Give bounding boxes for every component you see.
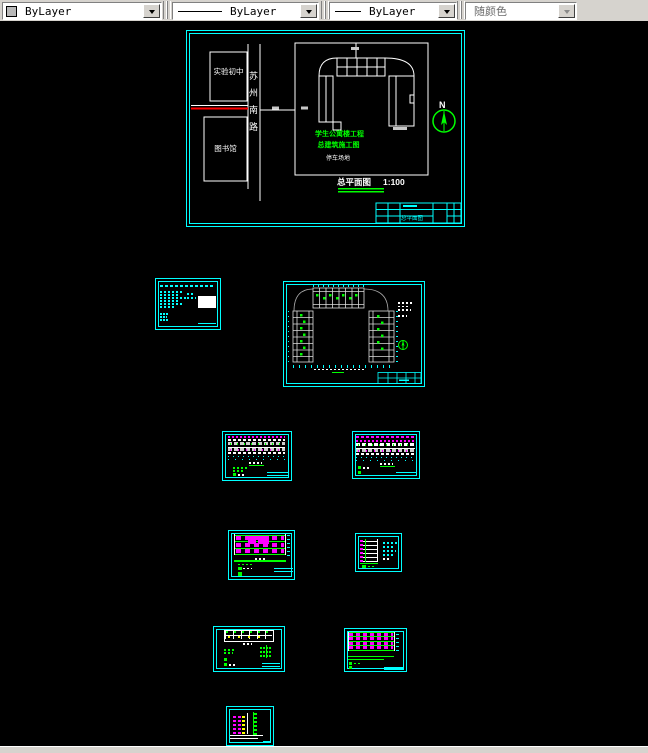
drawing-site-plan[interactable]: 实验初中 图书馆 苏州南路 学生公寓楼工程 总建筑施工图 停车场地 N 总平面图… <box>186 30 465 227</box>
notes-textline <box>187 293 195 295</box>
elevation-b-window-row <box>349 633 393 636</box>
library-building-label: 图书馆 <box>204 145 247 153</box>
chevron-down-icon <box>564 10 570 17</box>
plan-legend-textline <box>398 315 407 317</box>
parking-area-label: 停车场地 <box>323 156 353 162</box>
plan-b-titleblock-line <box>396 475 417 476</box>
site-plan-caption: 总平面图 1:100 <box>337 178 405 187</box>
plan-title-block <box>378 373 421 384</box>
plan-north-arrow-icon <box>399 340 408 350</box>
site-plan-caption-scale: 1:100 <box>383 178 405 187</box>
notes-heading-textline <box>160 285 213 287</box>
elevation-a-window-block <box>248 536 256 544</box>
object-properties-toolbar: ByLayer ByLayer ByLayer 随颜色 <box>0 0 648 22</box>
roof-plan-note-textline <box>224 649 236 651</box>
notes-textline <box>160 300 180 302</box>
plan-caption-underline <box>332 372 344 374</box>
plan-a-note-textline <box>233 470 243 472</box>
elevation-b-titleblock-line <box>384 669 404 670</box>
section-level-textline <box>383 554 393 556</box>
plan-dim-row-bottom <box>293 365 394 368</box>
plan-dim-col-left <box>288 311 290 362</box>
lineweight-combo-dropdown-arrow[interactable] <box>438 4 455 18</box>
plan-a-caption-textline <box>249 462 262 464</box>
drawing-elevation-b[interactable] <box>344 628 407 672</box>
section-legend-textline <box>368 566 376 568</box>
plan-legend-textline <box>398 309 411 311</box>
chevron-down-icon <box>444 10 450 17</box>
color-combo-value: ByLayer <box>25 5 71 18</box>
stair-base-line <box>230 735 263 736</box>
elevation-a-window-row <box>236 549 284 553</box>
drawing-floor-plan[interactable] <box>283 281 425 387</box>
stair-base-line <box>230 738 258 739</box>
notes-textline <box>160 303 184 305</box>
notes-textline <box>160 294 178 296</box>
road-name-label: 苏州南路 <box>248 71 257 149</box>
notes-textline <box>187 297 196 299</box>
plan-legend-textline <box>398 306 409 308</box>
linetype-combo-dropdown-arrow[interactable] <box>300 4 317 18</box>
section-note-textline <box>383 558 391 560</box>
elevation-a-titleblock-line <box>274 571 293 572</box>
section-level-textline <box>383 542 397 544</box>
elevation-a-note-textline <box>238 564 253 566</box>
notes-textline <box>160 306 176 308</box>
plan-legend-textline <box>398 302 412 304</box>
plan-a-wall-row <box>228 439 285 441</box>
stair-magenta-column <box>233 714 236 734</box>
roof-plan-note-textline <box>224 652 233 654</box>
notes-textline <box>160 313 168 315</box>
color-combo[interactable]: ByLayer <box>2 2 162 20</box>
lineweight-preview-icon <box>335 11 361 12</box>
site-plan-linework <box>187 31 464 226</box>
linetype-combo[interactable]: ByLayer <box>172 2 319 20</box>
chevron-down-icon <box>306 10 312 17</box>
notes-textline <box>160 319 168 321</box>
roof-plan-titleblock-line <box>262 666 280 667</box>
plan-a-dim-row-bottom <box>228 459 285 461</box>
plan-b-dim-row-bottom <box>356 457 415 459</box>
elevation-b-edge-line <box>394 632 395 651</box>
site-plan-caption-title: 总平面图 <box>337 178 371 187</box>
plan-b-dim-row <box>356 440 415 442</box>
linetype-combo-value: ByLayer <box>230 5 276 18</box>
plotstyle-combo: 随颜色 <box>465 2 577 20</box>
elevation-a-ground-line <box>234 560 286 562</box>
site-plan-titleblock-label: 总平面图 <box>401 217 423 223</box>
roof-plan-green-marks <box>226 631 270 633</box>
roof-plan-legend-swatch <box>224 663 227 666</box>
notes-titleblock-line <box>198 326 216 327</box>
stair-magenta-column <box>238 714 241 734</box>
stair-edge-line <box>247 713 248 734</box>
elevation-a-edge-line <box>285 534 286 555</box>
plan-dim-row-top <box>313 285 364 287</box>
drawing-section[interactable] <box>355 533 402 572</box>
elevation-a-level-marks <box>287 534 290 556</box>
project-title-line2: 总建筑施工图 <box>315 142 362 149</box>
section-edge-line <box>377 539 378 562</box>
plan-b-caption-textline <box>380 463 393 465</box>
elevation-a-caption-textline <box>255 558 266 560</box>
linetype-preview-icon <box>178 11 222 12</box>
roof-detail-hline <box>260 647 272 649</box>
plan-a-wall-row <box>228 452 285 454</box>
roof-plan-legend-swatch <box>224 658 227 661</box>
toolbar-separator <box>167 1 171 19</box>
elevation-b-window-row <box>349 646 393 649</box>
plan-caption-textline <box>314 369 364 371</box>
plan-dim-col-right <box>396 311 398 362</box>
plan-b-door-marks <box>358 444 413 446</box>
elevation-a-window-block <box>258 536 269 544</box>
elevation-a-legend-swatch <box>238 572 242 576</box>
north-label: N <box>439 101 446 110</box>
plan-b-dim-marks <box>358 450 413 452</box>
elevation-a-edge-line <box>234 534 235 555</box>
drawing-roof-plan[interactable] <box>213 626 285 672</box>
plan-b-wall-row <box>356 453 415 455</box>
section-green-line <box>365 539 366 562</box>
elevation-b-legend-swatch <box>349 666 352 669</box>
roof-plan-legend-textline <box>229 664 236 666</box>
roof-plan-titleblock-line <box>262 663 280 664</box>
school-building-label: 实验初中 <box>210 68 247 76</box>
elevation-b-titleblock-line <box>384 667 404 668</box>
plan-a-dim-row <box>228 436 285 438</box>
roof-detail-hline <box>260 651 272 653</box>
section-legend-swatch <box>362 565 366 568</box>
elevation-a-legend-textline <box>243 568 252 570</box>
stair-titleblock-mark <box>263 741 271 743</box>
elevation-b-legend-swatch <box>349 662 352 665</box>
plan-a-note-textline <box>233 467 247 469</box>
floor-plan-linework <box>284 282 424 386</box>
notes-textline <box>160 316 167 318</box>
drawing-elevation-a[interactable] <box>228 530 295 580</box>
plan-a-dim-row-bottom <box>228 456 285 458</box>
elevation-b-floor-line <box>348 650 394 651</box>
elevation-b-level-marks <box>396 632 399 651</box>
color-swatch <box>6 6 17 17</box>
section-ground-line <box>360 563 378 565</box>
plan-b-legend-textline <box>363 467 371 469</box>
elevation-b-ground-line2 <box>348 659 384 660</box>
lineweight-combo-value: ByLayer <box>369 5 415 18</box>
project-title-line1: 学生公寓楼工程 <box>315 131 362 138</box>
notes-textline <box>160 297 186 299</box>
drawing-standard-plan-a[interactable] <box>222 431 292 481</box>
stair-yellow-column <box>242 714 245 734</box>
elevation-a-floor-line <box>234 554 285 555</box>
plan-a-titleblock-line <box>267 472 289 473</box>
north-arrow-icon <box>433 110 455 132</box>
section-level-textline <box>383 550 396 552</box>
elevation-b-legend-textline <box>354 663 362 665</box>
plotstyle-combo-value: 随颜色 <box>474 3 507 19</box>
stair-green-strip <box>254 712 257 735</box>
elevation-a-titleblock-line <box>274 568 293 569</box>
plan-a-caption-underline <box>249 465 264 466</box>
cad-window: { "toolbar": { "color_combo": { "value":… <box>0 0 648 752</box>
drawing-standard-plan-b[interactable] <box>352 431 420 479</box>
plan-a-dim-marks <box>230 449 283 451</box>
drawing-stair-detail[interactable] <box>226 706 274 746</box>
plan-b-dim-row <box>356 436 415 438</box>
elevation-b-edge-line <box>348 632 349 651</box>
elevation-a-legend-swatch <box>238 567 242 571</box>
roof-plan-yellow-marks <box>228 636 268 638</box>
plan-b-titleblock-line <box>396 472 417 473</box>
drawing-design-notes[interactable] <box>155 278 221 330</box>
roof-detail-hline <box>260 655 272 657</box>
notes-white-panel <box>198 296 216 308</box>
section-left-details <box>360 539 363 562</box>
plotstyle-combo-dropdown-arrow <box>558 4 575 18</box>
plan-b-legend-swatch <box>358 471 361 474</box>
plan-a-legend-textline <box>238 474 246 476</box>
roof-plan-caption-textline <box>243 643 252 645</box>
plan-a-door-marks <box>230 443 283 445</box>
elevation-b-window-row <box>349 642 393 645</box>
elevation-b-window-row <box>349 637 393 640</box>
color-combo-dropdown-arrow[interactable] <box>143 4 160 18</box>
plan-a-titleblock-line <box>267 475 289 476</box>
chevron-down-icon <box>149 10 155 17</box>
elevation-b-ground-line <box>348 656 394 658</box>
notes-textline <box>160 291 182 293</box>
plan-b-caption-underline <box>380 466 395 467</box>
section-level-textline <box>383 546 394 548</box>
plan-b-dim-row-bottom <box>356 460 415 462</box>
plan-a-legend-swatch <box>233 473 236 476</box>
lineweight-combo[interactable]: ByLayer <box>329 2 457 20</box>
notes-titleblock-line <box>198 323 216 324</box>
plan-b-legend-swatch <box>358 466 361 469</box>
